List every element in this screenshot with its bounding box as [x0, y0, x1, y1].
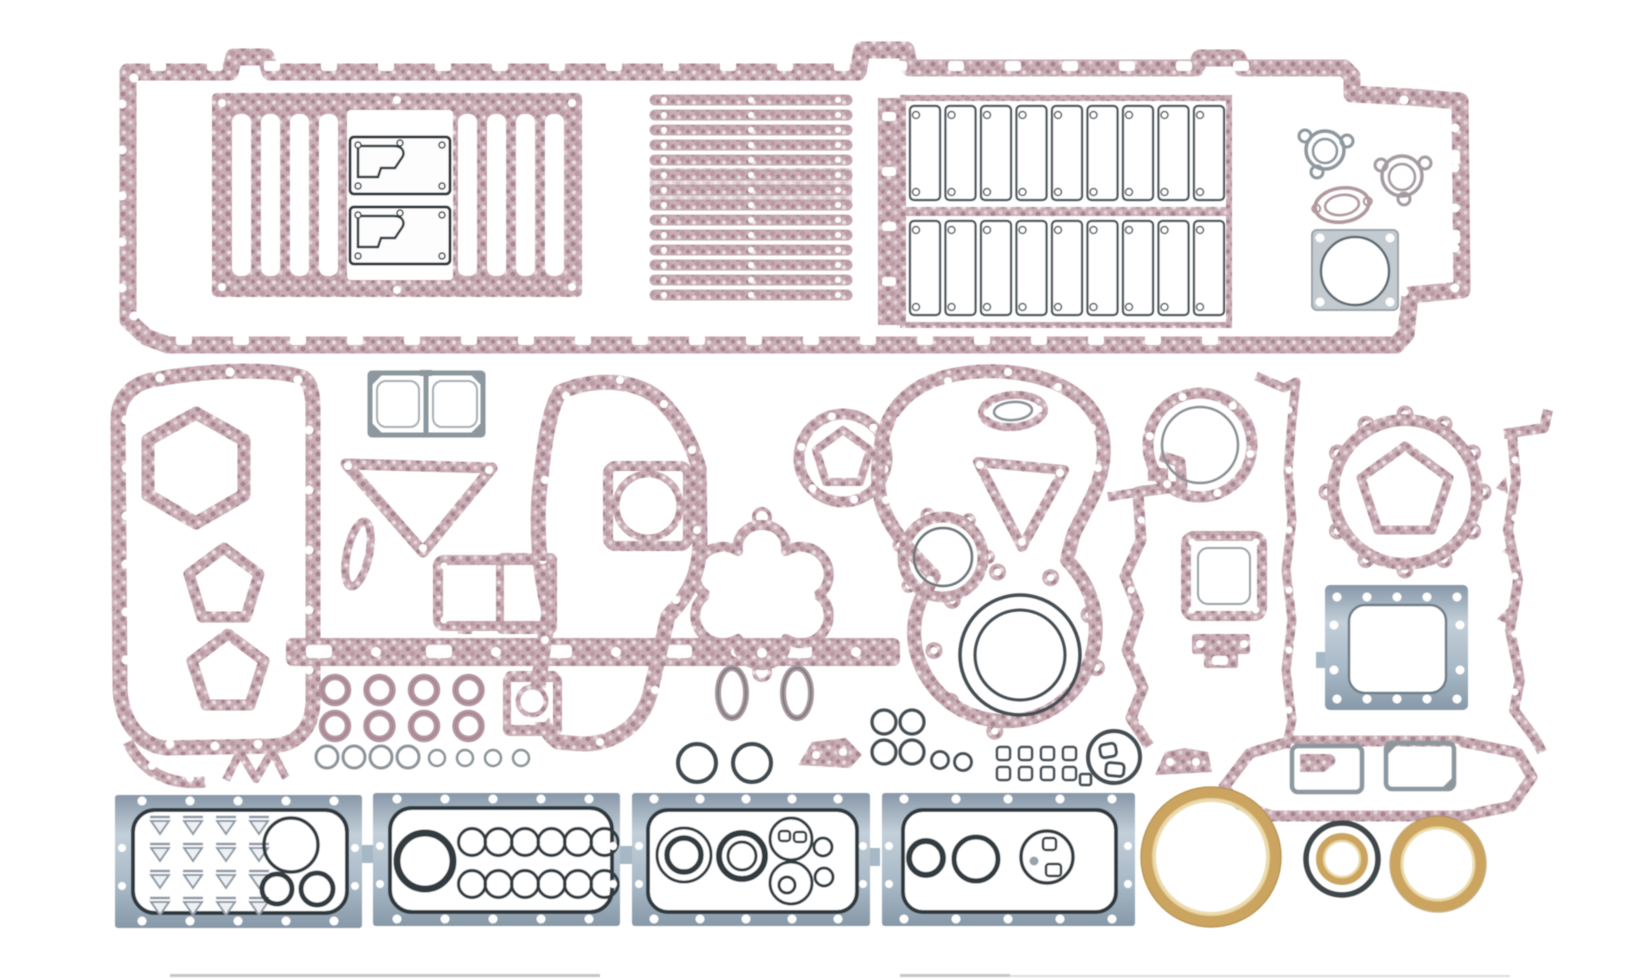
o-ring	[429, 750, 445, 766]
plate-hole	[1456, 666, 1465, 675]
frame-hole-right	[1451, 204, 1460, 213]
bolt-hole	[1056, 795, 1065, 804]
cell-notch	[948, 227, 955, 234]
slat-hole	[835, 247, 841, 253]
bolt-hole	[742, 915, 751, 924]
slat-hole	[661, 217, 667, 223]
center-front-cover-gasket	[538, 376, 701, 746]
cell-notch	[1126, 227, 1133, 234]
v-hole	[1163, 480, 1171, 488]
strip-hole	[1286, 527, 1293, 534]
strip-hole	[1286, 587, 1293, 594]
bolt-hole	[952, 795, 961, 804]
cell-notch	[1055, 189, 1062, 196]
v-hole	[1179, 393, 1187, 401]
frame-slot-top	[321, 61, 337, 71]
grommet	[367, 713, 393, 739]
v-hole	[1213, 489, 1221, 497]
frame-slot-bottom	[746, 335, 762, 345]
frame-slot-top	[891, 61, 907, 71]
frame-slot-bottom	[689, 335, 705, 345]
cell-notch	[1019, 189, 1026, 196]
o-ring	[397, 746, 419, 768]
frame-slot-bottom	[575, 335, 591, 345]
slat-gasket-stack	[650, 95, 852, 300]
plate-hole	[1363, 695, 1372, 704]
black-gold-seal-mid	[1306, 823, 1378, 895]
ladder-slot	[290, 114, 309, 276]
grommet-rings-pink	[322, 677, 482, 739]
pushrod-cell	[1194, 106, 1224, 200]
bolt-hole	[186, 797, 195, 806]
slat-hole	[748, 217, 754, 223]
scalloped-ring-gasket-small	[893, 508, 995, 597]
pushrod-cell	[1159, 221, 1189, 315]
v-hole	[1146, 432, 1154, 440]
plate-hole	[1393, 593, 1402, 602]
pushrod-cell	[981, 221, 1011, 315]
frame-slot-top	[720, 61, 736, 71]
mid-left-hole	[305, 486, 314, 495]
grommet	[456, 713, 482, 739]
plate-hole	[1363, 593, 1372, 602]
frame-hole-right	[1451, 284, 1460, 293]
cell-notch	[1126, 189, 1133, 196]
pushrod-cell	[1017, 221, 1047, 315]
cell-notch	[948, 304, 955, 311]
pushrod-cell	[1123, 221, 1153, 315]
plate-hole	[1393, 695, 1402, 704]
bolt-hole	[650, 915, 659, 924]
ladder-slot	[458, 114, 477, 276]
o-ring	[485, 750, 501, 766]
bolt-hole	[1056, 915, 1065, 924]
bolt-hole	[186, 917, 195, 926]
bolt-hole	[885, 880, 893, 888]
bolt-hole	[489, 795, 498, 804]
pushrod-cell	[910, 221, 940, 315]
slat-hole	[661, 142, 667, 148]
frame-slot-top	[150, 61, 166, 71]
timing-cover-gasket-left	[118, 368, 314, 751]
slat-hole	[835, 277, 841, 283]
seal-ring-small	[872, 740, 896, 764]
pushrod-cell	[946, 106, 976, 200]
plate-hole	[1423, 593, 1432, 602]
pushrod-cell	[946, 221, 976, 315]
strip-hole	[1286, 467, 1293, 474]
pushrod-cell	[1194, 221, 1224, 315]
mid-left-hole	[305, 666, 314, 675]
bolt-hole	[1108, 795, 1117, 804]
mid-left-hole	[122, 608, 131, 617]
slat-hole	[748, 112, 754, 118]
ladder-slot	[319, 114, 338, 276]
bolt-hole	[330, 797, 339, 806]
plate-hole	[1333, 695, 1342, 704]
square-gasket-mid-right	[1186, 536, 1262, 616]
frame-slot-bottom	[860, 335, 876, 345]
hex-hole	[1352, 801, 1361, 810]
frame-slot-top	[207, 61, 223, 71]
slat-hole	[835, 232, 841, 238]
cell-notch	[984, 189, 991, 196]
strip-hole	[1512, 689, 1519, 696]
cell-notch	[984, 304, 991, 311]
slat-hole	[661, 262, 667, 268]
bolt-hole	[376, 880, 384, 888]
slat-hole	[661, 277, 667, 283]
pushrod-cell	[1123, 106, 1153, 200]
cell-notch	[948, 189, 955, 196]
bolt-hole	[834, 915, 843, 924]
frame-hole-left	[118, 238, 127, 247]
bolt-hole	[650, 795, 659, 804]
ear-tabs	[1319, 406, 1492, 579]
cell-notch	[1019, 304, 1026, 311]
bolt-hole	[489, 915, 498, 924]
vertical-strip-gasket-right	[1496, 410, 1548, 752]
ladder-slot	[487, 114, 506, 276]
cell-notch	[1161, 112, 1168, 119]
square-throttle-plate-gasket	[1312, 230, 1398, 310]
frame-slot-top	[378, 61, 394, 71]
frame-hole-left	[118, 284, 127, 293]
bolt-hole	[952, 915, 961, 924]
bolt-hole	[138, 917, 147, 926]
pushrod-cell	[981, 106, 1011, 200]
frame-slot-bottom	[1031, 335, 1047, 345]
pushrod-cell	[1088, 106, 1118, 200]
frame-slot-bottom	[233, 335, 249, 345]
wp-hole	[797, 443, 805, 451]
strip-hole	[1286, 407, 1293, 414]
bolt-hole	[900, 795, 909, 804]
bolt-hole	[609, 842, 617, 850]
bolt-hole	[376, 842, 384, 850]
bolt-hole	[1124, 880, 1132, 888]
grommet	[322, 713, 348, 739]
grommet	[411, 677, 437, 703]
bolt-hole	[537, 915, 546, 924]
bolt-hole	[1004, 795, 1013, 804]
frame-hole-left	[118, 100, 127, 109]
bolt-holes	[1246, 744, 1521, 810]
seal-plate-panel-2	[373, 793, 632, 926]
hex-hole	[1294, 801, 1303, 810]
bolt-hole	[900, 915, 909, 924]
oval-gasket-top	[981, 393, 1045, 429]
plate-hole	[1456, 621, 1465, 630]
frame-slot-bottom	[1145, 335, 1161, 345]
bolt-hole	[537, 795, 546, 804]
slat-hole	[748, 247, 754, 253]
push-rod-cover-gaskets	[878, 98, 1229, 325]
slat-hole	[748, 262, 754, 268]
ladder-slot	[516, 114, 535, 276]
cell-notch	[913, 189, 920, 196]
pushrod-cell	[910, 106, 940, 200]
hex-hole	[1468, 801, 1477, 810]
bolt-hole	[742, 795, 751, 804]
ladder-slot	[545, 114, 564, 276]
cell-notch	[1019, 227, 1026, 234]
frame-slot-bottom	[803, 335, 819, 345]
gold-seal-right	[1390, 816, 1486, 912]
cell-notch	[984, 112, 991, 119]
slat-hole	[661, 292, 667, 298]
mid-left-hole	[305, 606, 314, 615]
frame-slot-top	[492, 61, 508, 71]
square-seal	[1041, 767, 1054, 780]
slat-hole	[661, 202, 667, 208]
frame-slot-bottom	[404, 335, 420, 345]
frame-slot-top	[1005, 61, 1021, 71]
slat-hole	[748, 232, 754, 238]
cell-notch	[1090, 189, 1097, 196]
cell-notch	[1197, 189, 1204, 196]
strip-hole	[1512, 631, 1519, 638]
cell-notch	[1090, 227, 1097, 234]
slat-hole	[661, 172, 667, 178]
ladder-slot	[232, 114, 251, 276]
crank-seal-rings-concentric	[960, 595, 1080, 715]
frame-slot-top	[435, 61, 451, 71]
bolt-hole	[138, 797, 147, 806]
bolt-hole	[585, 795, 594, 804]
frame-slot-top	[777, 61, 793, 71]
trefoil-flange-gasket-2	[1375, 156, 1431, 205]
slat-hole	[835, 292, 841, 298]
round-gasket-with-ovals	[1080, 731, 1140, 785]
frame-hole-left	[118, 146, 127, 155]
mid-left-hole	[122, 656, 131, 665]
frame-slot-bottom	[917, 335, 933, 345]
cell-notch	[1197, 227, 1204, 234]
wp-hole	[809, 484, 817, 492]
ring-gasket-mid-right	[1146, 393, 1254, 497]
seal-ring-small	[900, 740, 924, 764]
v-brace-gasket	[344, 462, 493, 552]
frame-slot-top	[1176, 61, 1192, 71]
mid-left-hole	[122, 560, 131, 569]
grommet	[456, 677, 482, 703]
cell-notch	[1055, 112, 1062, 119]
o-ring-row-small	[316, 746, 529, 768]
plate-hole	[1333, 593, 1342, 602]
slat-hole	[835, 112, 841, 118]
seal-plate-panel-3	[632, 793, 880, 926]
frame-slot-bottom	[518, 335, 534, 345]
top-right-small-gaskets	[1299, 130, 1431, 310]
frame-slot-bottom	[176, 335, 192, 345]
slat-hole	[835, 217, 841, 223]
o-ring	[370, 746, 392, 768]
plate-hole	[1453, 695, 1462, 704]
slat-hole	[661, 157, 667, 163]
pushrod-cell	[1017, 106, 1047, 200]
small-seal-ring-cluster	[872, 710, 972, 771]
slat-hole	[835, 127, 841, 133]
cell-notch	[913, 304, 920, 311]
slat-hole	[835, 97, 841, 103]
slat-hole	[748, 142, 754, 148]
bolt-hole	[330, 917, 339, 926]
cell-notch	[1090, 304, 1097, 311]
pushrod-cell	[1052, 221, 1082, 315]
double-square-steel-gasket	[370, 370, 483, 435]
bolt-hole	[859, 880, 867, 888]
photo-edge-artifacts	[170, 974, 1510, 977]
frame-slot-bottom	[1088, 335, 1104, 345]
slat-hole	[835, 262, 841, 268]
frame-slot-top	[948, 61, 964, 71]
cell-notch	[1161, 304, 1168, 311]
cell-notch	[913, 227, 920, 234]
bolt-hole	[118, 844, 126, 852]
slat-hole	[661, 232, 667, 238]
seal-plate-panel-4	[882, 793, 1135, 926]
bolt-hole	[585, 915, 594, 924]
frame-hole-left	[118, 192, 127, 201]
frame-slot-bottom	[632, 335, 648, 345]
plate-hole	[1423, 695, 1432, 704]
frame-hole-right	[1451, 124, 1460, 133]
frame-slot-top	[1233, 61, 1249, 71]
bolt-hole	[234, 797, 243, 806]
strip-hole	[1512, 515, 1519, 522]
blue-access-plate	[1316, 585, 1468, 710]
gold-crank-seal-large	[1141, 787, 1281, 927]
wp-hole	[850, 496, 858, 504]
slat-hole	[748, 277, 754, 283]
pushrod-cell	[1052, 106, 1082, 200]
bolt-hole	[234, 917, 243, 926]
bolt-hole	[441, 915, 450, 924]
square-seal	[997, 747, 1010, 760]
slat-hole	[661, 247, 667, 253]
square-seal	[997, 767, 1010, 780]
bolt-hole	[1124, 842, 1132, 850]
seal-plate-panel-1	[115, 795, 374, 928]
plate-hole	[1330, 621, 1339, 630]
grommet	[411, 713, 437, 739]
slat-hole	[661, 127, 667, 133]
slat-hole	[835, 142, 841, 148]
bracket-gasket-mid-right	[1192, 634, 1250, 668]
bolt-hole	[885, 842, 893, 850]
teardrop-gasket	[340, 519, 375, 588]
bolt-hole	[351, 882, 359, 890]
gasket-kit-scene	[0, 0, 1648, 979]
bolt-hole	[1004, 915, 1013, 924]
frame-hole-right	[1451, 164, 1460, 173]
strip-hole	[1512, 457, 1519, 464]
cell-notch	[984, 227, 991, 234]
mid-left-hole	[305, 546, 314, 555]
square-seal	[1041, 747, 1054, 760]
slat-hole	[835, 187, 841, 193]
square-seal	[1063, 747, 1076, 760]
seal-ring-small	[900, 710, 924, 734]
cell-notch	[1126, 112, 1133, 119]
slat-hole	[748, 292, 754, 298]
cover-plate-gasket-dark-1	[350, 137, 450, 194]
bolt-hole	[788, 795, 797, 804]
o-ring	[343, 746, 365, 768]
frame-slot-top	[549, 61, 565, 71]
seal-rings-pair	[678, 744, 771, 782]
frame-slot-top	[834, 61, 850, 71]
bolt-hole	[351, 844, 359, 852]
frame-slot-top	[663, 61, 679, 71]
grommet	[367, 677, 393, 703]
plate-hole	[1330, 666, 1339, 675]
long-hexagon-frame-gasket	[1224, 741, 1532, 816]
slat-hole	[748, 202, 754, 208]
cell-notch	[1019, 112, 1026, 119]
frame-hole-right	[1451, 244, 1460, 253]
slat-hole	[748, 157, 754, 163]
bolt-hole	[609, 880, 617, 888]
cell-notch	[1055, 304, 1062, 311]
frame-slot-bottom	[461, 335, 477, 345]
trefoil-flange-gasket-1	[1299, 130, 1353, 178]
grommet	[322, 677, 348, 703]
frame-slot-bottom	[290, 335, 306, 345]
bolt-hole	[859, 842, 867, 850]
o-ring	[513, 750, 529, 766]
slat-hole	[835, 157, 841, 163]
bolt-hole	[788, 915, 797, 924]
bell-ear	[989, 564, 1006, 581]
bolt-hole	[393, 795, 402, 804]
cell-notch	[1055, 227, 1062, 234]
bolt-hole	[1108, 915, 1117, 924]
frame-slot-bottom	[1202, 335, 1218, 345]
square-seal	[1019, 767, 1032, 780]
wp-hole	[869, 424, 877, 432]
cell-notch	[913, 112, 920, 119]
cell-notch	[1161, 189, 1168, 196]
frame-slot-bottom	[347, 335, 363, 345]
bolt-hole	[441, 795, 450, 804]
mid-left-hole	[122, 512, 131, 521]
mid-left-hole	[122, 464, 131, 473]
square-seal	[1019, 747, 1032, 760]
frame-slot-top	[264, 61, 280, 71]
pushrod-cell	[1088, 221, 1118, 315]
bolt-hole	[282, 917, 291, 926]
square-seal-grid	[997, 747, 1076, 780]
slat-hole	[748, 172, 754, 178]
slat-hole	[835, 172, 841, 178]
frame-slot-top	[1119, 61, 1135, 71]
bolt-hole	[635, 880, 643, 888]
bolt-hole	[282, 797, 291, 806]
slat-hole	[661, 112, 667, 118]
bolt-hole	[118, 882, 126, 890]
seal-ring-small	[872, 710, 896, 734]
square-seal	[1063, 767, 1076, 780]
wp-hole	[828, 412, 836, 420]
v-hole	[1229, 402, 1237, 410]
slat-hole	[661, 97, 667, 103]
cell-notch	[1197, 304, 1204, 311]
ladder-slot	[261, 114, 280, 276]
slat-hole	[835, 202, 841, 208]
slat-hole	[748, 97, 754, 103]
